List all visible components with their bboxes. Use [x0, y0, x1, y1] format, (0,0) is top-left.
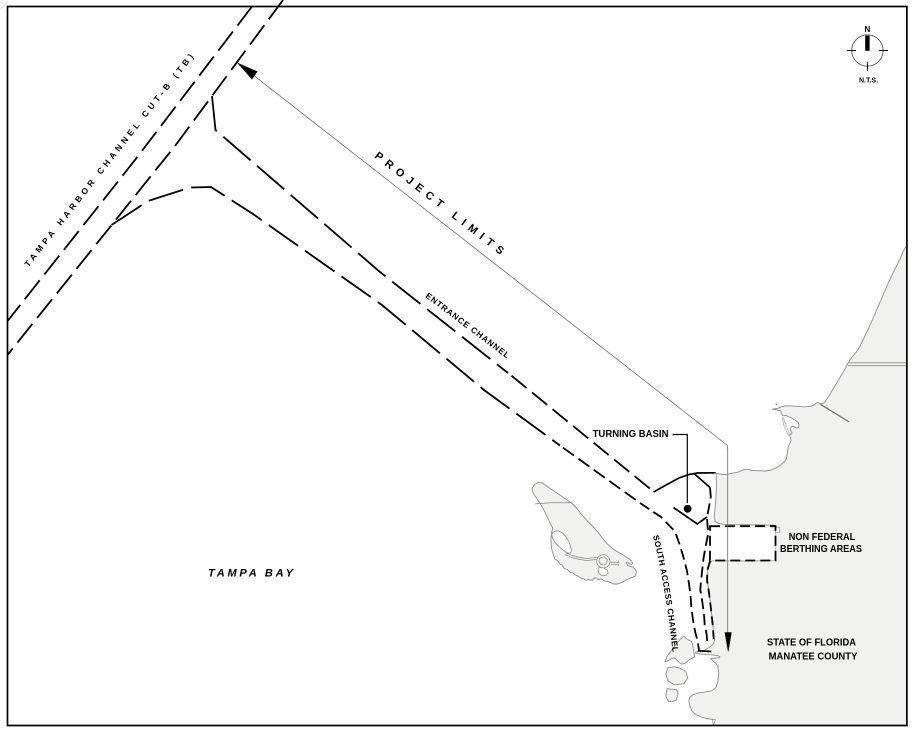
svg-text:N: N: [865, 25, 871, 34]
svg-text:STATE OF FLORIDA: STATE OF FLORIDA: [767, 636, 856, 648]
svg-text:TURNING BASIN: TURNING BASIN: [593, 429, 669, 440]
svg-text:MANATEE COUNTY: MANATEE COUNTY: [769, 651, 858, 663]
svg-text:NON FEDERAL: NON FEDERAL: [789, 532, 856, 543]
svg-text:BERTHING AREAS: BERTHING AREAS: [780, 544, 862, 555]
svg-text:N.T.S.: N.T.S.: [859, 77, 878, 84]
svg-text:TAMPA BAY: TAMPA BAY: [208, 568, 296, 580]
